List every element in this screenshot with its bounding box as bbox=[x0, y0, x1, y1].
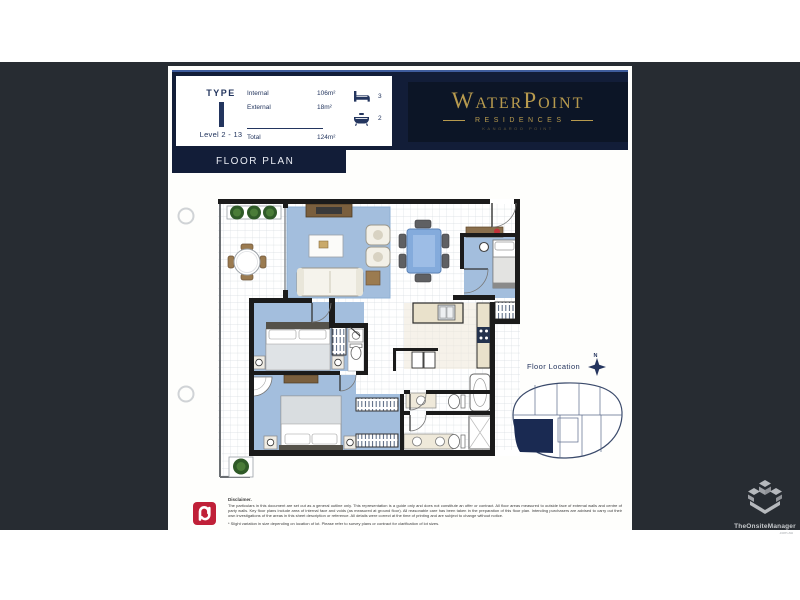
toilet bbox=[351, 347, 361, 360]
plants bbox=[230, 206, 277, 220]
area-value: 124m² bbox=[317, 134, 335, 141]
highlighted-unit bbox=[514, 419, 553, 453]
logo-subtitle-row: RESIDENCES bbox=[408, 117, 628, 124]
area-value: 18m² bbox=[317, 104, 332, 111]
logo-tagline: KANGAROO POINT bbox=[408, 126, 628, 131]
bathrooms-count: 2 bbox=[378, 115, 382, 122]
bathroom-2 bbox=[348, 327, 364, 371]
wall-clock bbox=[480, 243, 489, 252]
developer-logo bbox=[193, 502, 216, 525]
bath-icon bbox=[352, 112, 372, 127]
walkthrough-robe bbox=[356, 434, 398, 447]
hole-punch-marks bbox=[179, 209, 194, 402]
area-value: 106m² bbox=[317, 90, 335, 97]
logo-title: WATERPOINT bbox=[408, 89, 628, 116]
area-label: External bbox=[247, 104, 271, 111]
logo-initial-w: W bbox=[452, 88, 476, 113]
area-divider bbox=[247, 128, 323, 129]
side-table bbox=[366, 271, 380, 285]
logo-rule-right bbox=[571, 120, 593, 121]
onsitemanager-icon bbox=[742, 479, 788, 517]
compass-icon bbox=[588, 358, 606, 376]
developer-monogram-icon bbox=[193, 502, 216, 525]
publisher-watermark: TheOnsiteManager .com.au bbox=[733, 479, 797, 535]
toilet bbox=[449, 435, 460, 449]
logo-initial-p: P bbox=[523, 88, 538, 113]
logo-part-ater: ATER bbox=[475, 95, 523, 112]
type-block: TYPE Level 2 - 13 bbox=[190, 88, 252, 139]
bedrooms-row: 3 bbox=[352, 90, 372, 106]
bathrooms-row: 2 bbox=[352, 112, 372, 128]
wardrobe bbox=[332, 325, 346, 355]
bedroom2 bbox=[253, 322, 346, 370]
watermark-domain: .com.au bbox=[733, 530, 793, 535]
logo-rule-left bbox=[443, 120, 465, 121]
floor-location: Floor Location N bbox=[513, 353, 622, 458]
dresser bbox=[284, 375, 318, 383]
laundry-appliance bbox=[424, 352, 435, 368]
wardrobe bbox=[495, 302, 516, 319]
headboard bbox=[266, 322, 330, 329]
area-label: Internal bbox=[247, 90, 269, 97]
double-vanity bbox=[404, 434, 453, 449]
disclaimer-body: The particulars in this document are set… bbox=[228, 503, 622, 518]
logo-subtitle: RESIDENCES bbox=[470, 117, 565, 124]
watermark-brand: TheOnsiteManager bbox=[733, 523, 797, 530]
type-label: TYPE bbox=[190, 88, 252, 98]
floor-location-label: Floor Location bbox=[527, 362, 580, 371]
disclaimer-note: * Slight variation in size depending on … bbox=[228, 521, 622, 526]
floor-plan-title: FLOOR PLAN bbox=[216, 156, 294, 167]
level-range: Level 2 - 13 bbox=[190, 130, 252, 139]
round-table bbox=[234, 249, 260, 275]
disclaimer-block: Disclaimer. The particulars in this docu… bbox=[228, 497, 622, 526]
screenshot-root: { "colors": { "background": "#272c32", "… bbox=[0, 0, 800, 600]
bedrooms-count: 3 bbox=[378, 93, 382, 100]
unit-spec-box: TYPE Level 2 - 13 Internal 106m² Externa… bbox=[176, 76, 392, 146]
waterpoint-logo: WATERPOINT RESIDENCES KANGAROO POINT bbox=[408, 82, 628, 142]
compass-n-label: N bbox=[594, 353, 598, 359]
toilet bbox=[449, 395, 460, 409]
logo-part-oint: OINT bbox=[538, 95, 584, 112]
cooktop bbox=[477, 327, 490, 343]
bed-icon bbox=[352, 90, 372, 104]
area-label: Total bbox=[247, 134, 261, 141]
floor-plan-drawing: Floor Location N bbox=[168, 170, 632, 530]
disclaimer-heading: Disclaimer. bbox=[228, 497, 622, 502]
type-value-glyph bbox=[219, 102, 224, 127]
walkthrough-robe bbox=[356, 398, 398, 411]
floorplan-page: TYPE Level 2 - 13 Internal 106m² Externa… bbox=[168, 66, 632, 530]
laundry-appliance bbox=[412, 352, 423, 368]
